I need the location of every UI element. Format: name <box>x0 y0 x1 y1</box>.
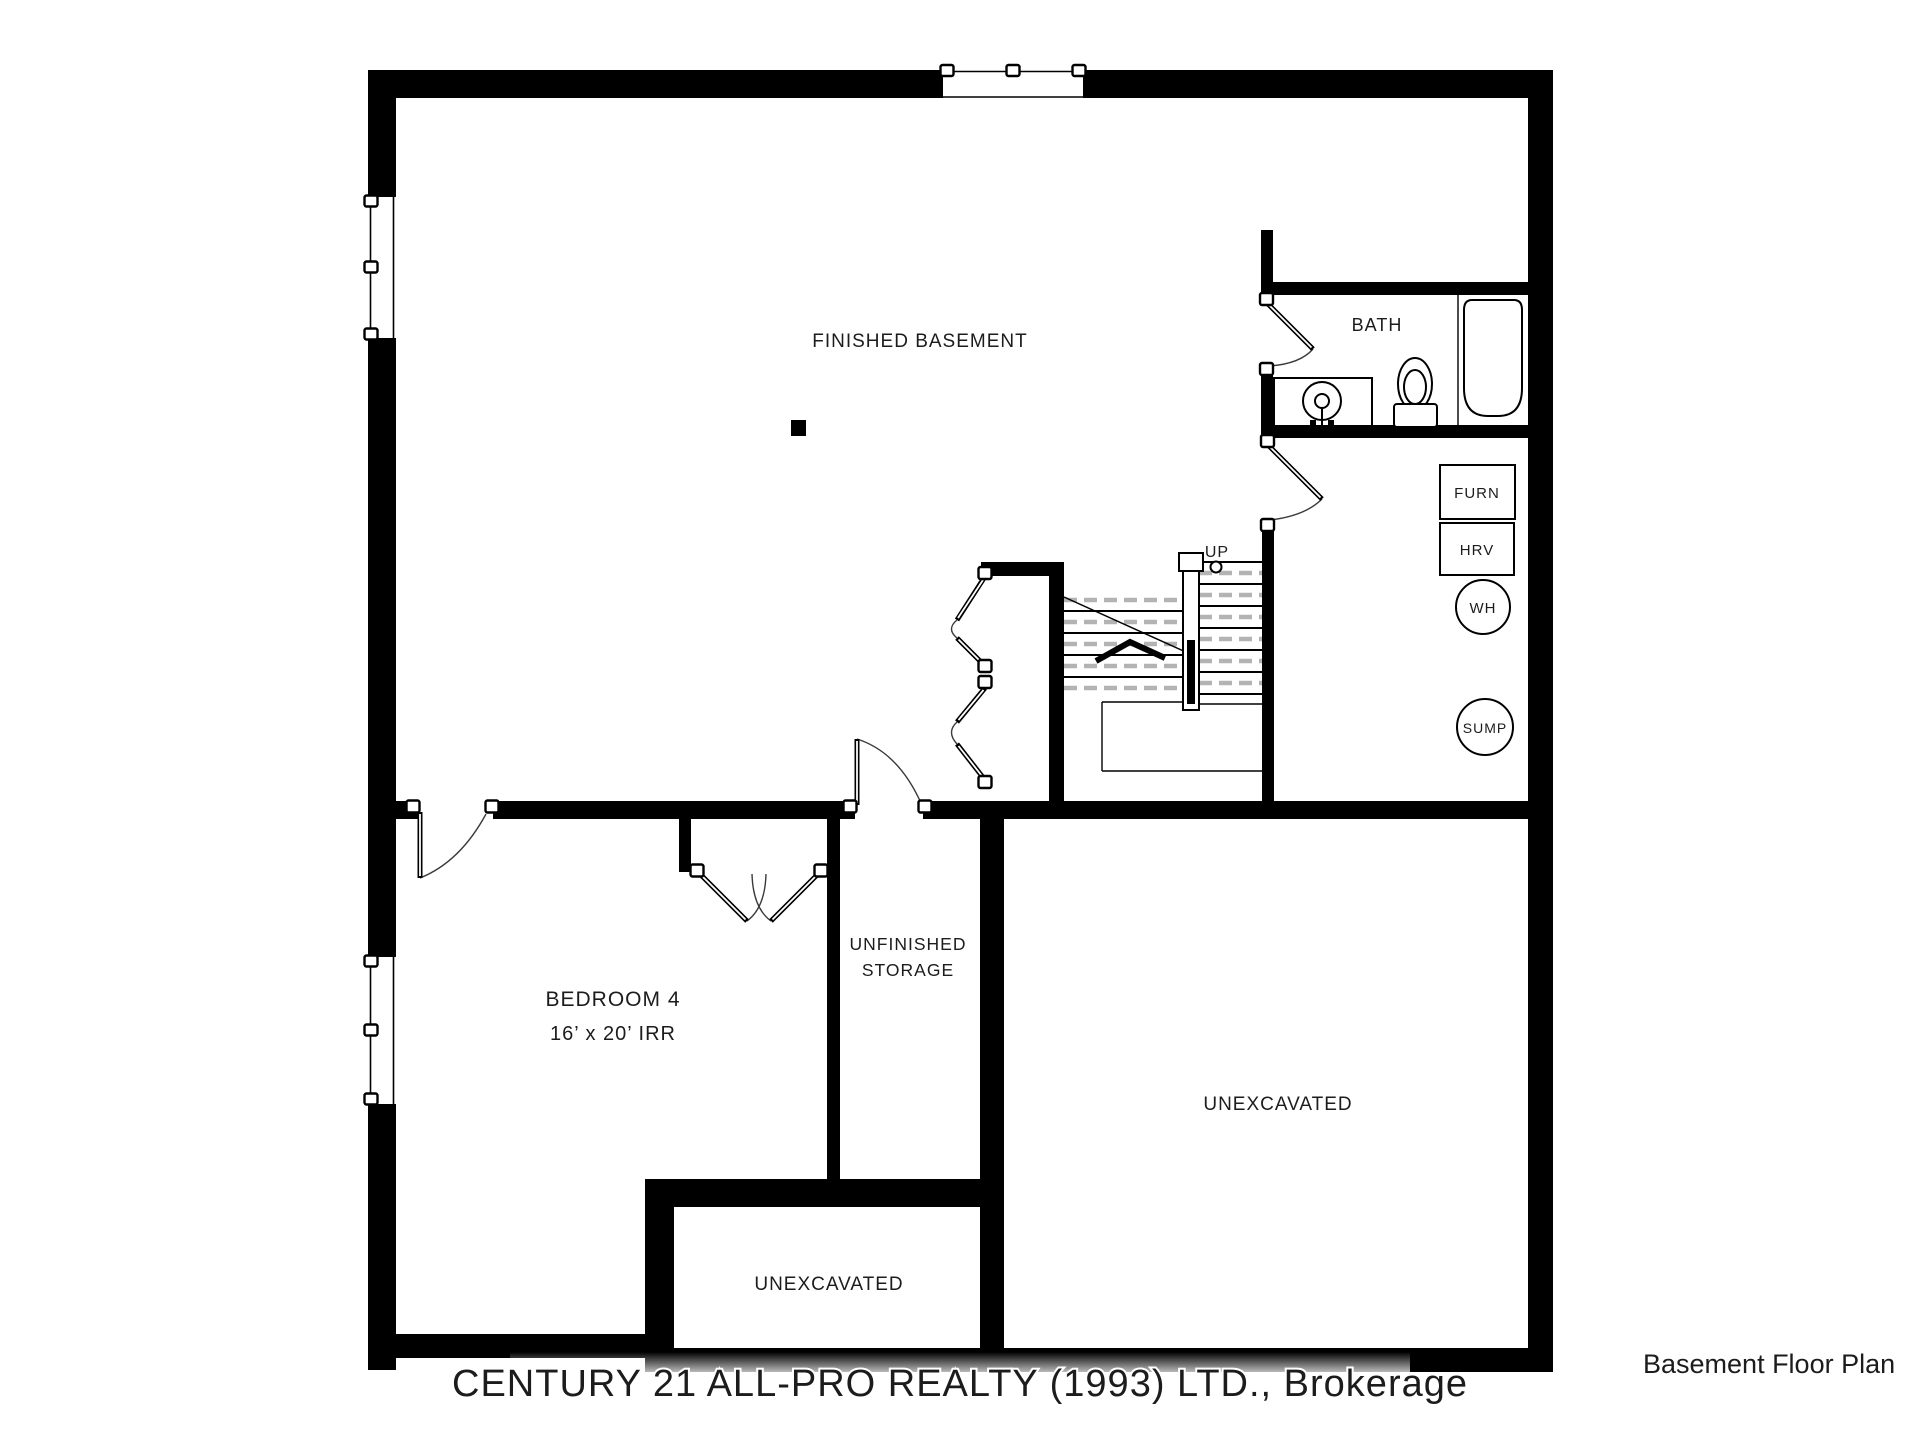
up-label: UP <box>1205 544 1229 561</box>
bathtub <box>1464 300 1522 416</box>
unfinished-storage-line2: STORAGE <box>862 960 954 980</box>
top-window <box>941 65 1086 97</box>
brokerage-watermark: CENTURY 21 ALL-PRO REALTY (1993) LTD., B… <box>452 1363 1468 1405</box>
bath-door <box>1260 293 1313 375</box>
bedroom4-label: BEDROOM 4 <box>545 988 680 1011</box>
floor-plan-drawing: FINISHED BASEMENT BATH UP FURN HRV WH SU… <box>0 0 1920 1442</box>
stair-break-line <box>1064 597 1199 658</box>
structural-post <box>791 420 806 436</box>
unexcavated-large-label: UNEXCAVATED <box>1203 1094 1352 1115</box>
left-window-lower <box>365 956 394 1105</box>
unexcavated-small-label: UNEXCAVATED <box>754 1274 903 1295</box>
understair-outline <box>1102 702 1262 771</box>
left-window-upper <box>365 196 394 340</box>
plan-title: Basement Floor Plan <box>1643 1349 1895 1379</box>
bedroom-closet-doors <box>691 865 828 922</box>
hrv-label: HRV <box>1460 542 1494 559</box>
furn-label: FURN <box>1454 485 1500 502</box>
interior-walls <box>368 230 1553 1372</box>
toilet <box>1394 358 1437 427</box>
storage-door <box>844 739 932 813</box>
stair-closet-bifold-doors <box>952 567 992 788</box>
unfinished-storage-line1: UNFINISHED <box>850 934 967 954</box>
stairs <box>1064 553 1262 771</box>
bedroom-door <box>407 801 499 879</box>
finished-basement-label: FINISHED BASEMENT <box>812 331 1027 352</box>
wh-label: WH <box>1470 600 1497 617</box>
bath-label: BATH <box>1352 315 1403 335</box>
sump-label: SUMP <box>1463 720 1507 736</box>
stair-stringer <box>1179 553 1203 710</box>
stair-newel-marker <box>1211 562 1222 573</box>
utility-door <box>1261 435 1322 531</box>
basement-floor-plan-page: FINISHED BASEMENT BATH UP FURN HRV WH SU… <box>0 0 1920 1442</box>
bedroom4-dims: 16’ x 20’ IRR <box>550 1023 676 1045</box>
vanity-sink <box>1274 378 1372 426</box>
